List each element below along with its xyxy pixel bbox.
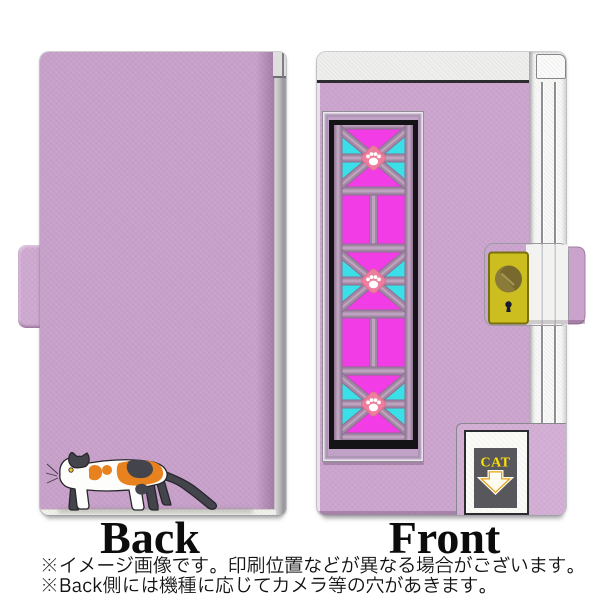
svg-text:CAT: CAT [480, 456, 510, 471]
